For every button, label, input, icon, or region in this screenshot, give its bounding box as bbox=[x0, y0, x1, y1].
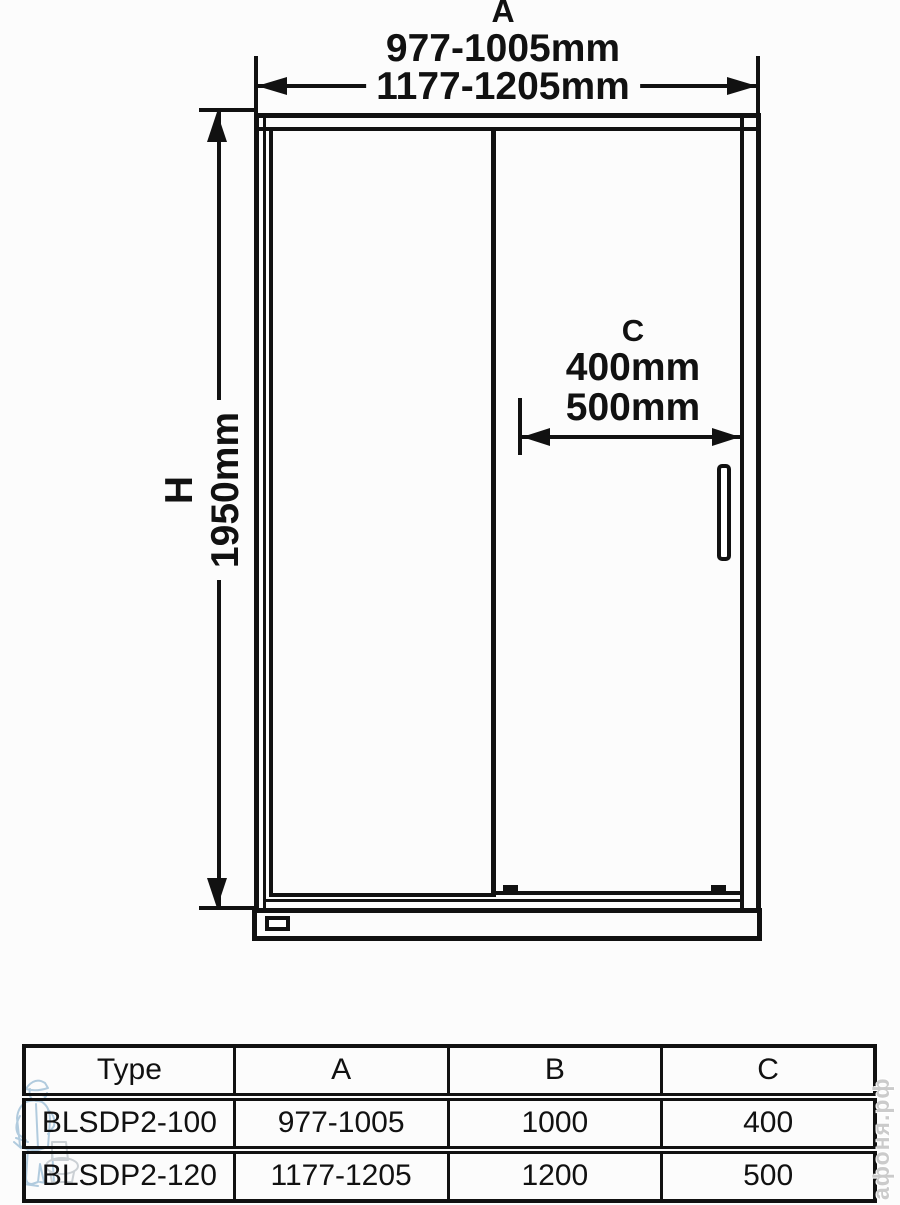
dim-a-range-120: 1177-1205mm bbox=[366, 68, 640, 106]
shower-door-spec-sheet: A 977-1005mm 1177-1205mm H 1950mm bbox=[0, 0, 900, 1200]
dim-c-value-100: 400mm bbox=[566, 348, 700, 388]
col-header-type: Type bbox=[22, 1044, 236, 1096]
dim-c-tick bbox=[518, 398, 522, 455]
dim-c-arrowhead-right bbox=[712, 428, 740, 446]
cell-type: BLSDP2-100 bbox=[22, 1098, 236, 1149]
dim-c-arrow-line bbox=[522, 435, 740, 439]
dim-h-arrowhead-top bbox=[207, 112, 227, 142]
sliding-panel-bottom-line bbox=[496, 891, 740, 895]
dim-a-range-100: 977-1005mm bbox=[366, 30, 640, 68]
dim-a-arrowhead-left bbox=[257, 77, 287, 95]
table-row: BLSDP2-120 1177-1205 1200 500 bbox=[22, 1151, 877, 1203]
col-header-b: B bbox=[450, 1044, 664, 1096]
cell-a: 977-1005 bbox=[236, 1098, 450, 1149]
left-wall-profile-line bbox=[263, 118, 266, 908]
dim-a-arrowhead-right bbox=[727, 77, 757, 95]
dim-a-labels: A 977-1005mm 1177-1205mm bbox=[366, 0, 640, 106]
panel-divider-line bbox=[491, 129, 496, 897]
cell-a: 1177-1205 bbox=[236, 1151, 450, 1203]
table-header-row: Type A B C bbox=[22, 1044, 877, 1096]
door-roller-left bbox=[503, 885, 518, 891]
dim-c-letter: C bbox=[566, 314, 700, 348]
door-roller-right bbox=[711, 885, 726, 891]
top-rail-inner-line bbox=[259, 127, 756, 131]
door-handle bbox=[717, 464, 731, 561]
shower-tray bbox=[252, 908, 762, 941]
dim-c-arrowhead-left bbox=[522, 428, 550, 446]
cell-b: 1000 bbox=[450, 1098, 664, 1149]
dim-h-value: 1950mm bbox=[203, 400, 249, 580]
site-watermark-text: афоня.рф bbox=[868, 1084, 894, 1200]
table-row: BLSDP2-100 977-1005 1000 400 bbox=[22, 1098, 877, 1149]
spec-table-header: Type A B C bbox=[22, 1044, 877, 1096]
dim-a-letter: A bbox=[366, 0, 640, 30]
col-header-a: A bbox=[236, 1044, 450, 1096]
spec-table: Type A B C BLSDP2-100 977-1005 1000 400 … bbox=[22, 1042, 877, 1205]
dim-h-arrowhead-bottom bbox=[207, 878, 227, 908]
dim-c-value-120: 500mm bbox=[566, 388, 700, 428]
cell-type: BLSDP2-120 bbox=[22, 1151, 236, 1203]
dim-h-tick-bottom bbox=[199, 906, 254, 910]
cell-b: 1200 bbox=[450, 1151, 664, 1203]
door-frame-outline bbox=[254, 113, 761, 910]
fixed-panel-bottom-line bbox=[273, 893, 491, 897]
cell-c: 500 bbox=[663, 1151, 877, 1203]
fixed-panel-edge-line bbox=[269, 129, 273, 897]
bottom-rail-line bbox=[266, 899, 740, 902]
dim-h-tick-top bbox=[199, 108, 256, 112]
dim-h-labels: H 1950mm bbox=[157, 400, 249, 580]
dim-c-labels: C 400mm 500mm bbox=[566, 314, 700, 428]
col-header-c: C bbox=[663, 1044, 877, 1096]
cell-c: 400 bbox=[663, 1098, 877, 1149]
right-wall-profile-line bbox=[740, 118, 744, 908]
dim-h-letter: H bbox=[157, 400, 203, 580]
tray-drain bbox=[265, 916, 290, 931]
